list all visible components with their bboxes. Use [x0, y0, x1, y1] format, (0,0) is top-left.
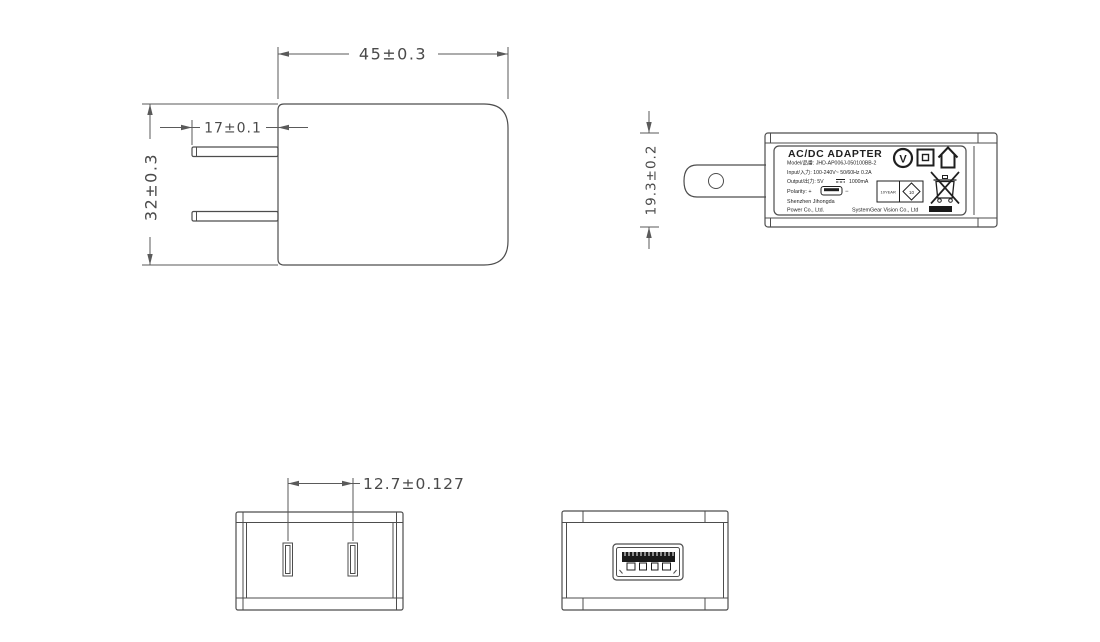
usb-notch-right	[674, 570, 677, 574]
usb-notch-left	[620, 570, 623, 574]
front-view: 45±0.3 17±0.1 32±0.3	[142, 45, 509, 266]
label-model-line: Model/品番: JHD-AP006J-050100BB-2	[787, 160, 876, 167]
pin-pitch-value: 12.7±0.127	[363, 475, 465, 493]
lower-pin	[192, 212, 278, 222]
dimension-front-width: 45±0.3	[278, 45, 508, 100]
efup-diamond-number: 10	[909, 190, 915, 195]
side-view: 19.3±0.2 AC/DC ADAPTER Model/品番: JHD-AP0…	[640, 111, 997, 249]
label-output-prefix: Output/出力: 5V	[787, 177, 824, 185]
adapter-drawing: 45±0.3 17±0.1 32±0.3	[0, 0, 1100, 642]
label-black-bar	[929, 206, 952, 212]
front-width-value: 45±0.3	[359, 45, 427, 64]
efup-diamond-icon: 10	[903, 183, 920, 200]
label-company-line3: SystemGear Vision Co., Ltd	[852, 208, 918, 214]
usb-port	[613, 544, 683, 580]
pin-slot-left	[283, 543, 293, 576]
adapter-body-outline	[278, 104, 508, 265]
efup-box: 10YEAR 10	[877, 181, 923, 202]
label-polarity-suffix: −	[845, 189, 849, 195]
plug-blade	[684, 165, 766, 197]
label-output-suffix: 1000mA	[849, 179, 869, 185]
label-input-line: Input/入力: 100-240V~ 50/60Hz 0.2A	[787, 168, 872, 176]
label-title: AC/DC ADAPTER	[788, 148, 882, 160]
side-thickness-value: 19.3±0.2	[644, 145, 660, 216]
dc-symbol-icon	[836, 180, 845, 183]
top-view-outline	[236, 512, 403, 610]
label-company-line1: Shenzhen Jihongda	[787, 199, 835, 205]
class-ii-icon	[918, 150, 934, 166]
top-view: 12.7±0.127	[236, 475, 465, 610]
dimension-pin-pitch: 12.7±0.127	[288, 475, 465, 541]
dimension-pin-length: 17±0.1	[160, 120, 308, 145]
pin-slot-right	[348, 543, 358, 576]
v-certification-icon: V	[894, 149, 912, 167]
dimension-side-thickness: 19.3±0.2	[640, 111, 660, 249]
product-label: AC/DC ADAPTER Model/品番: JHD-AP006J-05010…	[774, 146, 974, 215]
blade-hole	[709, 174, 724, 189]
label-company-line2: Power Co., Ltd.	[787, 208, 824, 214]
indoor-use-icon	[939, 148, 958, 168]
drawing-canvas: 45±0.3 17±0.1 32±0.3	[0, 0, 1100, 642]
usb-contacts	[627, 563, 671, 570]
efup-text: 10YEAR	[881, 190, 896, 195]
bottom-view	[562, 511, 728, 610]
pin-length-value: 17±0.1	[204, 121, 262, 137]
upper-pin	[192, 147, 278, 157]
v-mark-letter: V	[899, 154, 907, 166]
label-polarity-prefix: Polarity: +	[787, 189, 812, 195]
usb-plug-icon	[821, 187, 842, 196]
front-height-value: 32±0.3	[142, 153, 161, 221]
weee-bin-icon	[931, 172, 959, 204]
